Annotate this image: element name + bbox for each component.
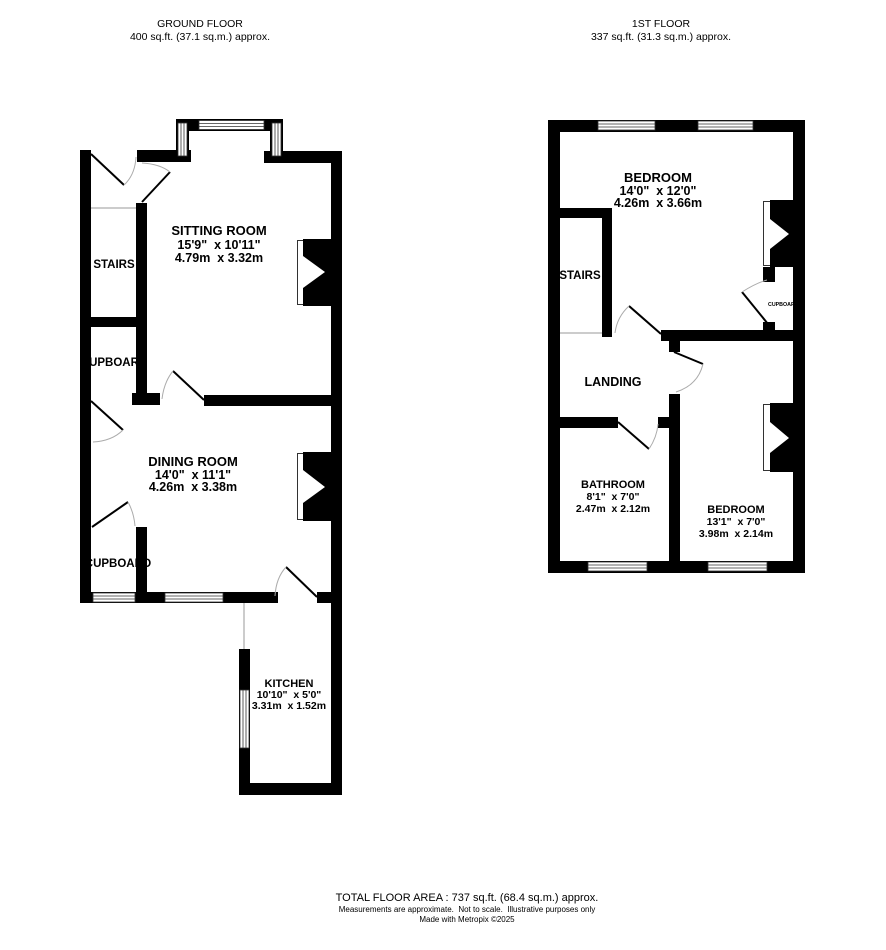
wall: [548, 120, 805, 132]
wall: [204, 395, 342, 406]
first-floor-doors: [615, 280, 768, 449]
wall: [136, 327, 147, 393]
credit: Made with Metropix ©2025: [419, 915, 515, 924]
wall: [661, 330, 805, 341]
wall: [669, 341, 680, 352]
bedroom1-metric: 4.26m x 3.66m: [614, 196, 702, 210]
wall: [132, 393, 160, 405]
chimney-breast: [770, 403, 793, 472]
wall: [136, 527, 147, 593]
window: [240, 690, 249, 748]
ground-floor-header: GROUND FLOOR 400 sq.ft. (37.1 sq.m.) app…: [130, 18, 270, 43]
first-floor-plan: BEDROOM 14'0" x 12'0" 4.26m x 3.66m STAI…: [548, 120, 805, 573]
door-swing: [618, 422, 658, 449]
dining-room-name: DINING ROOM: [148, 454, 238, 469]
window: [698, 121, 753, 130]
ground-floor-doors: [91, 154, 317, 597]
window: [588, 562, 647, 571]
first-floor-header: 1ST FLOOR 337 sq.ft. (31.3 sq.m.) approx…: [591, 18, 731, 43]
wall: [763, 322, 775, 332]
cupboard-door-swing: [742, 280, 768, 324]
first-floor-title: 1ST FLOOR: [632, 18, 691, 30]
ground-floor-labels: SITTING ROOM 15'9" x 10'11" 4.79m x 3.32…: [93, 223, 326, 712]
wall: [602, 208, 612, 337]
window: [708, 562, 767, 571]
bathroom-name: BATHROOM: [581, 479, 645, 491]
ground-floor-chimneys: [298, 239, 332, 521]
floorplan-page: GROUND FLOOR 400 sq.ft. (37.1 sq.m.) app…: [0, 0, 886, 950]
bedroom2-imperial: 13'1" x 7'0": [707, 516, 766, 528]
door-swing: [162, 371, 204, 400]
chimney-breast: [303, 452, 331, 521]
door-swing: [615, 306, 661, 334]
total-floor-area: TOTAL FLOOR AREA : 737 sq.ft. (68.4 sq.m…: [336, 892, 599, 904]
bedroom2-metric: 3.98m x 2.14m: [699, 528, 773, 540]
chimney-breast: [770, 200, 793, 267]
chimney-breast: [303, 239, 331, 306]
first-floor-labels: BEDROOM 14'0" x 12'0" 4.26m x 3.66m STAI…: [559, 170, 773, 540]
dining-room-metric: 4.26m x 3.38m: [149, 480, 237, 494]
wall: [793, 120, 805, 573]
footer: TOTAL FLOOR AREA : 737 sq.ft. (68.4 sq.m…: [336, 892, 599, 924]
window: [93, 593, 135, 602]
wall: [80, 150, 91, 603]
sitting-room-name: SITTING ROOM: [171, 223, 266, 238]
kitchen-metric: 3.31m x 1.52m: [252, 700, 326, 712]
door-swing: [142, 163, 170, 202]
bedroom2-name: BEDROOM: [707, 504, 764, 516]
ground-floor-windows: [93, 121, 281, 749]
wall: [80, 317, 147, 327]
window: [598, 121, 655, 130]
door-swing: [275, 567, 317, 597]
bathroom-metric: 2.47m x 2.12m: [576, 503, 650, 515]
floorplan-svg: GROUND FLOOR 400 sq.ft. (37.1 sq.m.) app…: [0, 0, 886, 950]
under-wall-labels: CUPBOARD CUPBOARD CUPBOARD: [81, 302, 799, 570]
door-swing: [91, 401, 123, 442]
wall: [136, 203, 147, 327]
landing-label: LANDING: [585, 375, 642, 389]
wall: [317, 592, 331, 603]
cupboard-door-swing: [92, 502, 135, 527]
door-swing: [674, 352, 703, 392]
bedroom1-name: BEDROOM: [624, 170, 692, 185]
sitting-room-imperial: 15'9" x 10'11": [177, 238, 260, 252]
wall: [548, 417, 618, 428]
bathroom-imperial: 8'1" x 7'0": [587, 491, 640, 503]
wall: [331, 151, 342, 795]
wall: [658, 417, 680, 428]
stairs-label: STAIRS: [559, 270, 601, 282]
wall: [548, 120, 560, 573]
ground-floor-area: 400 sq.ft. (37.1 sq.m.) approx.: [130, 31, 270, 43]
sitting-room-metric: 4.79m x 3.32m: [175, 251, 263, 265]
stairs-label: STAIRS: [93, 259, 135, 271]
window: [165, 593, 223, 602]
ground-floor-plan: SITTING ROOM 15'9" x 10'11" 4.79m x 3.32…: [80, 119, 342, 795]
wall: [763, 267, 775, 282]
front-door-swing: [91, 154, 136, 185]
wall: [239, 783, 342, 795]
first-floor-area: 337 sq.ft. (31.3 sq.m.) approx.: [591, 31, 731, 43]
ground-floor-title: GROUND FLOOR: [157, 18, 243, 30]
disclaimer: Measurements are approximate. Not to sca…: [339, 905, 596, 914]
